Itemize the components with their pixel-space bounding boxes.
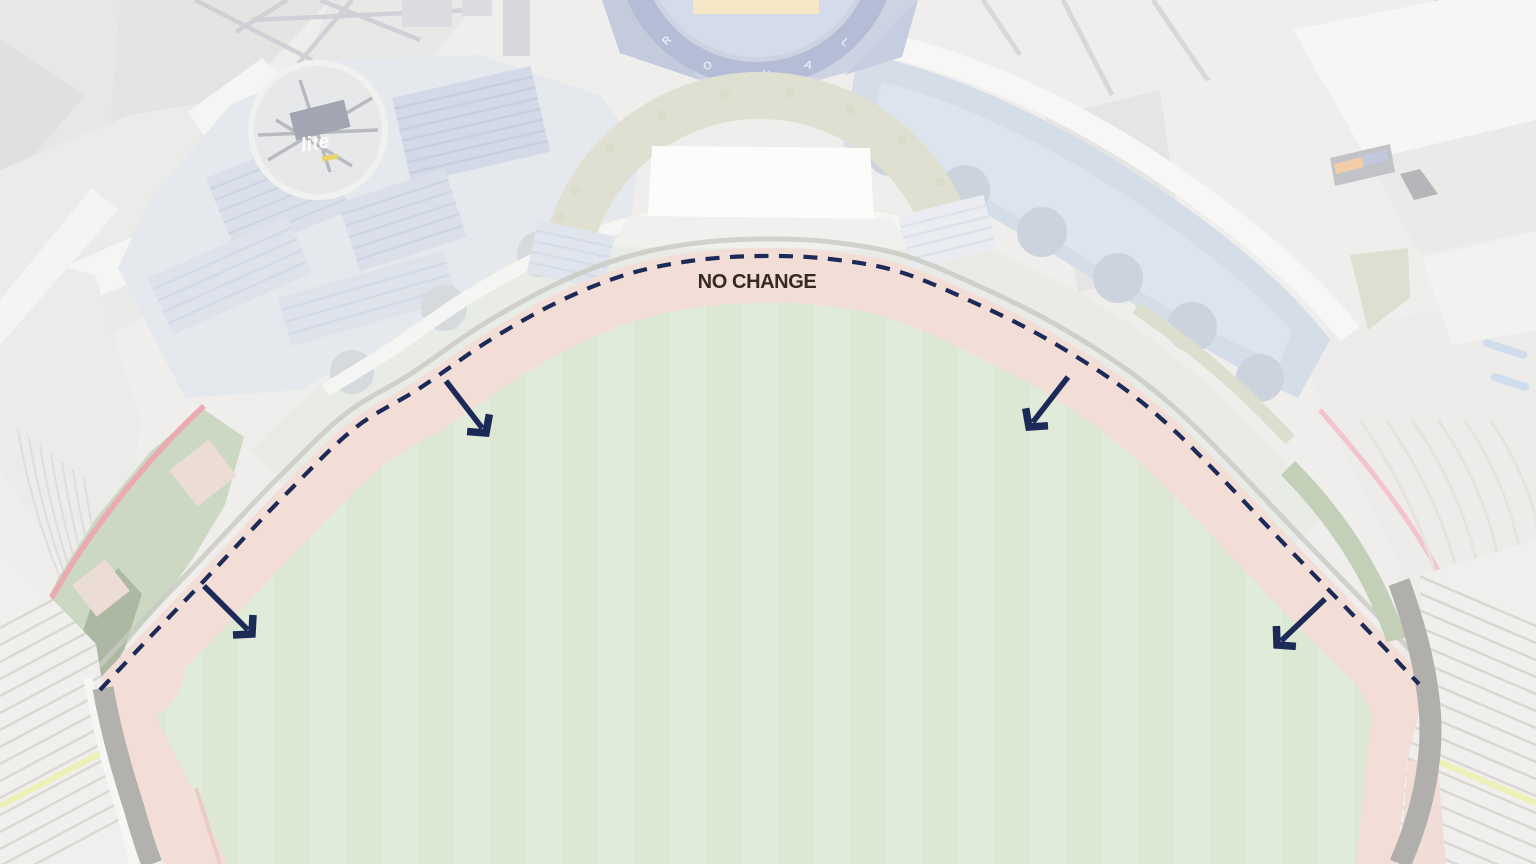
svg-text:NO CHANGE: NO CHANGE <box>698 271 817 293</box>
